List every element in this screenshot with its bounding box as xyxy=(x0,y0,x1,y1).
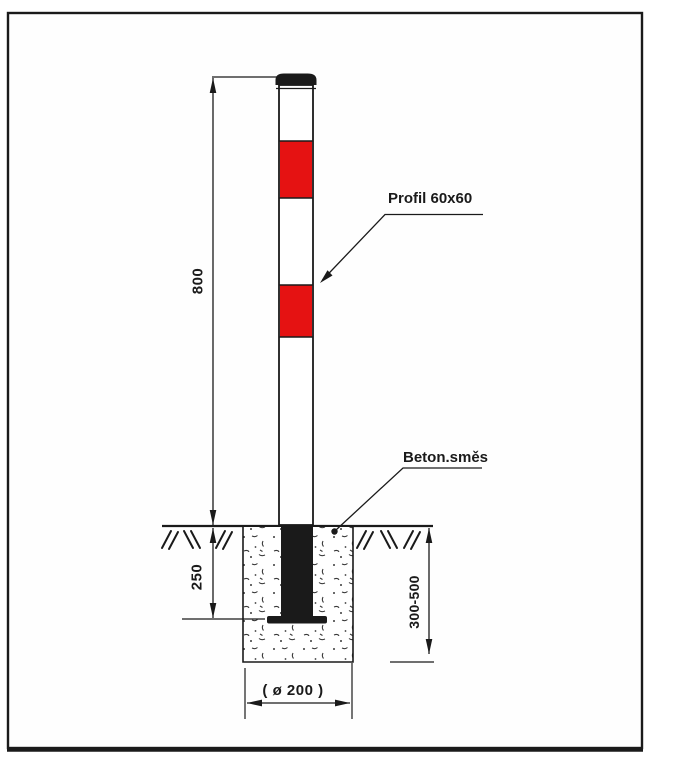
dim-300-500-label: 300-500 xyxy=(406,575,422,628)
red-band-upper xyxy=(280,141,312,198)
post-cap xyxy=(276,74,317,86)
dim-dia-200-label: ( ø 200 ) xyxy=(262,682,323,699)
callout-concrete-label: Beton.směs xyxy=(403,449,488,466)
callout-profile-label: Profil 60x60 xyxy=(388,190,472,207)
dim-250-label: 250 xyxy=(188,564,205,591)
red-band-lower xyxy=(280,285,312,337)
bollard-diagram: 800 250 300-500 ( ø 200 ) Profil 60x60 B… xyxy=(0,0,678,768)
bollard-post xyxy=(276,74,317,526)
dim-800-label: 800 xyxy=(189,268,206,295)
base-flange xyxy=(267,616,327,624)
drawing-page: 800 250 300-500 ( ø 200 ) Profil 60x60 B… xyxy=(0,0,678,768)
